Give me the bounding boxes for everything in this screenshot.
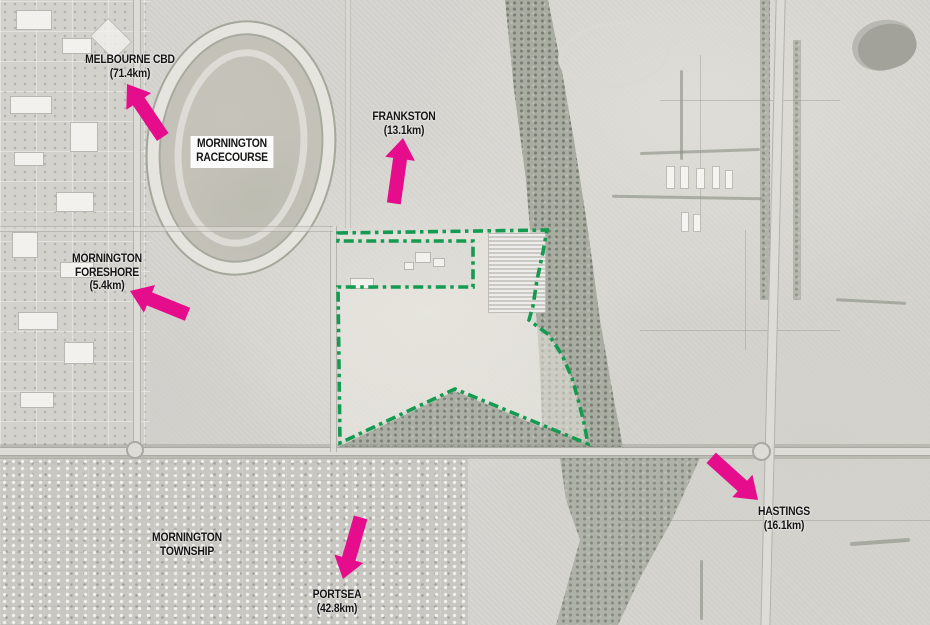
label-line: FRANKSTON xyxy=(350,111,458,125)
building xyxy=(18,312,58,330)
shed xyxy=(681,212,689,232)
building xyxy=(16,10,52,30)
tree-row xyxy=(700,560,703,620)
building xyxy=(70,122,98,152)
label-line: RACECOURSE xyxy=(196,152,268,166)
tree-strip-right-road xyxy=(793,40,801,300)
greenhouse-panel xyxy=(488,233,546,313)
label-frankston: FRANKSTON (13.1km) xyxy=(350,111,458,138)
label-line: PORTSEA xyxy=(283,589,391,603)
field-boundary xyxy=(745,230,746,350)
shed xyxy=(725,170,733,189)
building xyxy=(14,152,44,166)
label-line: MELBOURNE CBD xyxy=(76,54,184,68)
label-distance: (5.4km) xyxy=(53,280,161,294)
building xyxy=(62,38,92,54)
label-line: MORNINGTON xyxy=(53,253,161,267)
field-boundary xyxy=(700,55,701,220)
field-boundary xyxy=(640,330,840,331)
shed xyxy=(693,214,701,232)
field-boundary xyxy=(660,100,840,101)
label-distance: (13.1km) xyxy=(350,125,458,139)
label-melbourne-cbd: MELBOURNE CBD (71.4km) xyxy=(76,54,184,81)
label-hastings: HASTINGS (16.1km) xyxy=(730,506,838,533)
label-distance: (42.8km) xyxy=(283,603,391,617)
label-distance: (16.1km) xyxy=(730,520,838,534)
building xyxy=(20,392,54,408)
shed xyxy=(666,166,675,189)
aerial-location-map: MELBOURNE CBD (71.4km) FRANKSTON (13.1km… xyxy=(0,0,930,625)
street-industrial xyxy=(0,226,333,232)
roundabout-east xyxy=(752,442,771,461)
label-distance: (71.4km) xyxy=(76,68,184,82)
farm-shed xyxy=(350,278,374,289)
dwelling xyxy=(404,262,414,270)
label-mornington-racecourse: MORNINGTON RACECOURSE xyxy=(178,136,286,168)
building xyxy=(56,192,94,212)
dwelling xyxy=(415,252,431,263)
dwelling xyxy=(433,258,445,267)
racecourse-label-box: MORNINGTON RACECOURSE xyxy=(191,136,274,168)
label-line: FORESHORE xyxy=(53,267,161,281)
shed xyxy=(696,168,705,189)
tree-row xyxy=(680,70,683,160)
label-portsea: PORTSEA (42.8km) xyxy=(283,589,391,616)
label-line: MORNINGTON xyxy=(133,532,241,546)
label-line: TOWNSHIP xyxy=(133,546,241,560)
road-site-west xyxy=(330,226,337,452)
shed xyxy=(680,166,689,189)
label-mornington-foreshore: MORNINGTON FORESHORE (5.4km) xyxy=(53,253,161,294)
shed xyxy=(712,166,720,189)
roundabout-west xyxy=(126,441,144,459)
label-mornington-township: MORNINGTON TOWNSHIP xyxy=(133,532,241,559)
building xyxy=(12,232,38,258)
label-line: MORNINGTON xyxy=(196,138,268,152)
building xyxy=(64,342,94,364)
label-line: HASTINGS xyxy=(730,506,838,520)
building xyxy=(10,96,52,114)
